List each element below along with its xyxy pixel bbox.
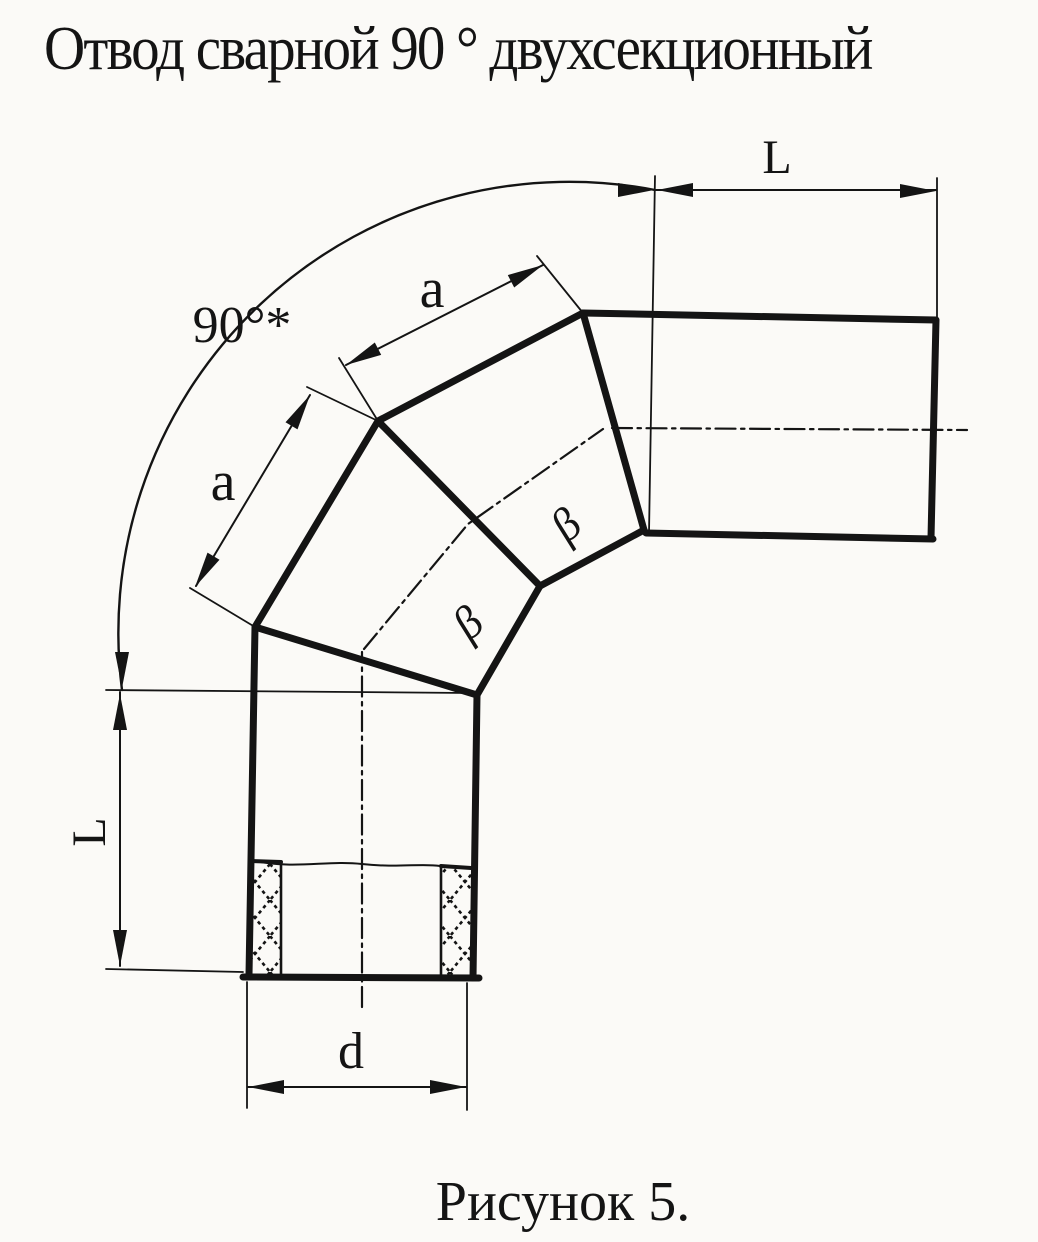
dim-label-angle: 90°* <box>193 300 292 352</box>
dim-label-segment-upper: a <box>420 261 445 317</box>
dim-label-length-top: L <box>762 134 791 182</box>
elbow-line-drawing <box>0 0 1038 1242</box>
dim-label-length-left: L <box>66 817 114 846</box>
pipe-outline <box>243 313 936 978</box>
dim-label-segment-lower: a <box>211 454 236 510</box>
figure-caption: Рисунок 5. <box>436 1170 690 1234</box>
dim-label-diameter: d <box>338 1026 364 1078</box>
bore-cross-section <box>250 860 471 977</box>
scanned-page: Отвод сварной 90 ° двухсекционный <box>0 0 1038 1242</box>
